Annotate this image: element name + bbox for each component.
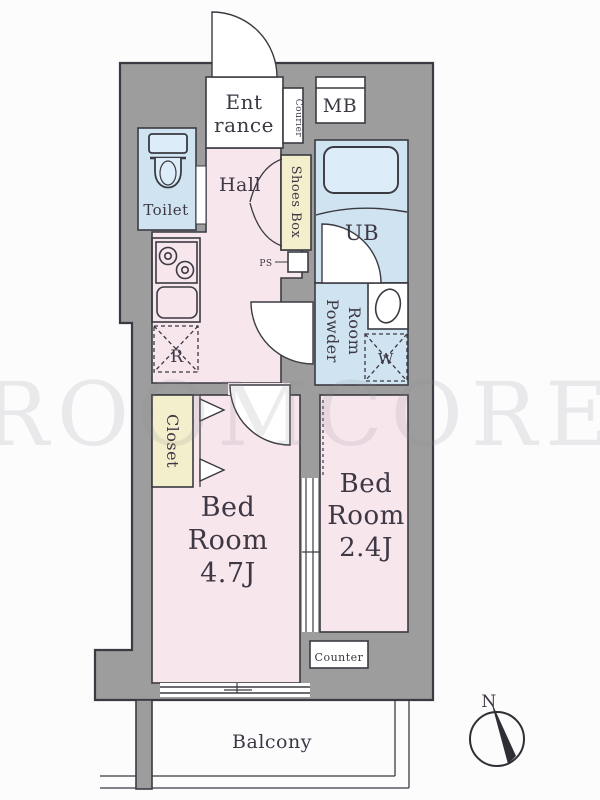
entrance-label-line2: rance: [214, 113, 274, 137]
powder-label-line2: Room: [345, 307, 364, 355]
compass-icon: N: [470, 692, 524, 766]
sink-icon: [368, 283, 408, 329]
bedroom1-label-line2: Room: [188, 525, 268, 556]
floor-plan: Ent rance Courier MB Toilet Hall Shoes B…: [0, 0, 600, 800]
toilet-label: Toilet: [143, 201, 188, 219]
bedroom2-label-line3: 2.4J: [339, 533, 393, 563]
sliding-door-track: [302, 478, 318, 632]
bedroom1-label-line3: 4.7J: [200, 558, 256, 589]
mb-label: MB: [323, 95, 357, 117]
powder-label-line1: Powder: [323, 299, 342, 363]
bedroom2-label-line2: Room: [327, 501, 405, 531]
shoes-box-label: Shoes Box: [288, 166, 303, 239]
floor-plan-page: Ent rance Courier MB Toilet Hall Shoes B…: [0, 0, 600, 800]
ps-label: PS: [259, 259, 272, 269]
toilet-door: [196, 166, 206, 224]
watermark-text: ROOMCORE: [0, 363, 600, 466]
entrance-label-line1: Ent: [225, 90, 262, 114]
balcony-label: Balcony: [232, 731, 312, 753]
bedroom2-label-line1: Bed: [340, 469, 393, 499]
courier-label: Courier: [293, 99, 303, 138]
counter-label: Counter: [315, 651, 364, 664]
ps-box: [288, 252, 308, 272]
compass-north-label: N: [481, 692, 496, 712]
bedroom1-label-line1: Bed: [201, 492, 256, 523]
ub-label: UB: [345, 221, 379, 245]
hall-label: Hall: [219, 174, 261, 196]
balcony-left-wall: [136, 700, 152, 789]
entrance-door: [212, 12, 277, 77]
